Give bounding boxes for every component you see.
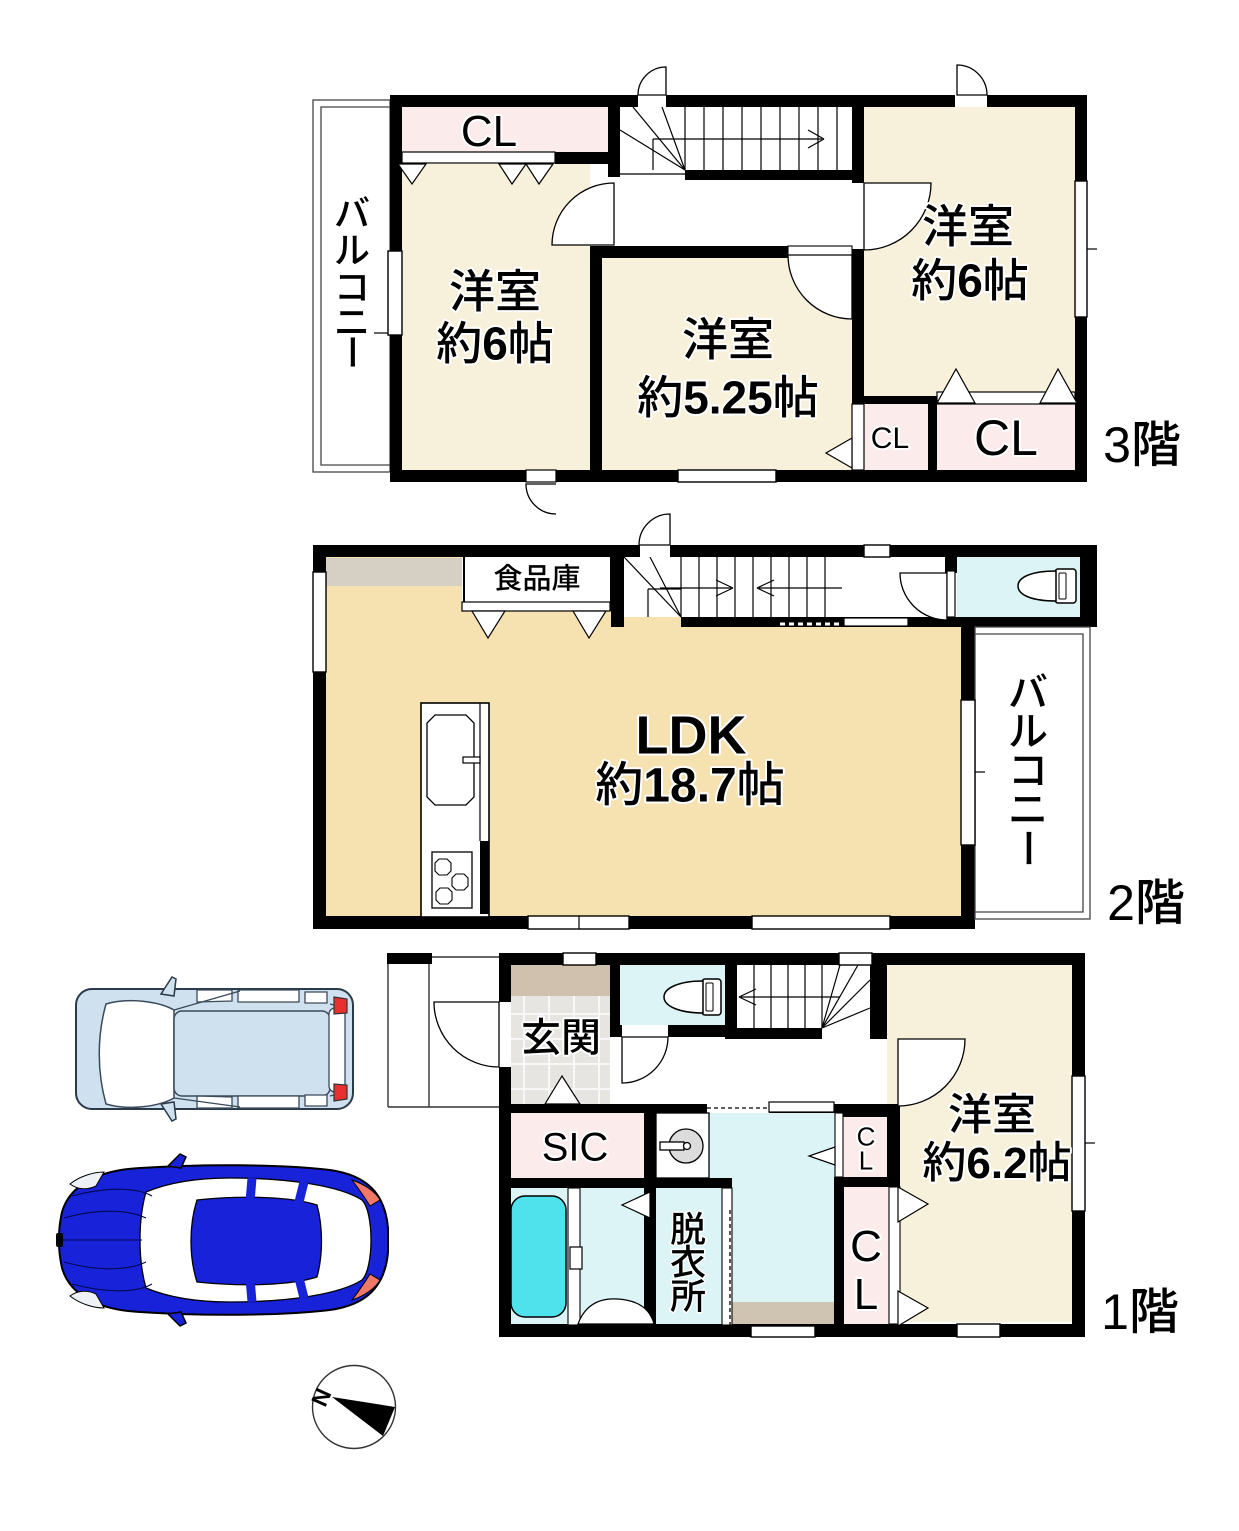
svg-text:CL: CL — [871, 422, 909, 455]
svg-text:LDK: LDK — [636, 705, 747, 765]
svg-text:6: 6 — [482, 318, 508, 370]
svg-text:CL: CL — [461, 107, 517, 156]
svg-text:18.7: 18.7 — [643, 759, 736, 812]
svg-text:L: L — [854, 1270, 878, 1319]
svg-text:1: 1 — [1101, 1284, 1129, 1340]
svg-text:5.25: 5.25 — [683, 372, 773, 424]
svg-text:3: 3 — [1103, 417, 1131, 473]
svg-text:SIC: SIC — [542, 1125, 609, 1169]
svg-text:CL: CL — [974, 410, 1038, 466]
svg-text:C: C — [850, 1222, 882, 1271]
svg-text:6: 6 — [957, 255, 983, 307]
svg-text:6.2: 6.2 — [966, 1139, 1027, 1188]
svg-text:L: L — [859, 1145, 873, 1175]
svg-text:2: 2 — [1107, 875, 1135, 931]
